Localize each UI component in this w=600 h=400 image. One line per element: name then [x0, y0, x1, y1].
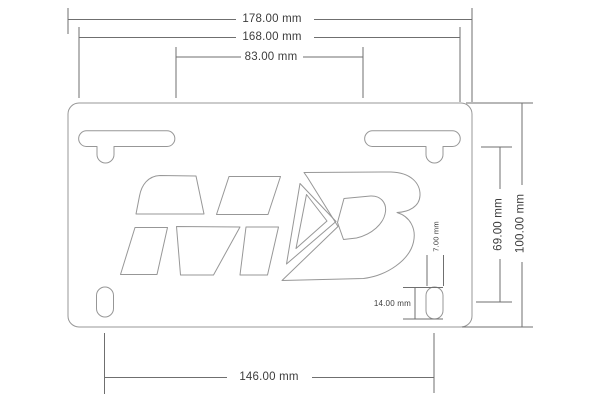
top-right-slot [365, 131, 461, 163]
dim-label-hole-width: 7.00 mm [432, 218, 441, 256]
dim-label-overall-width: 178.00 mm [212, 13, 332, 26]
dim-label-slot-to-hole: 69.00 mm [493, 194, 506, 256]
d-outer [282, 172, 420, 281]
arrow-inner [296, 195, 327, 249]
dim-label-hole-spacing: 146.00 mm [209, 371, 329, 384]
technical-drawing: 178.00 mm 168.00 mm 83.00 mm 146.00 mm 6… [0, 0, 600, 400]
dim-label-overall-height: 100.00 mm [515, 189, 528, 259]
d-counter [338, 196, 386, 240]
top-left-slot [79, 131, 175, 163]
dim-line-hole-spacing [105, 333, 435, 394]
dim-label-slots-inner-gap: 83.00 mm [211, 51, 331, 64]
bottom-left-hole [97, 287, 114, 317]
bottom-right-hole [426, 287, 443, 319]
plate-outline [68, 103, 472, 327]
dim-label-hole-height: 14.00 mm [368, 299, 411, 308]
md-logo [121, 172, 421, 281]
dim-line-hole-width [427, 255, 444, 286]
dim-label-slots-outer-width: 168.00 mm [212, 31, 332, 44]
